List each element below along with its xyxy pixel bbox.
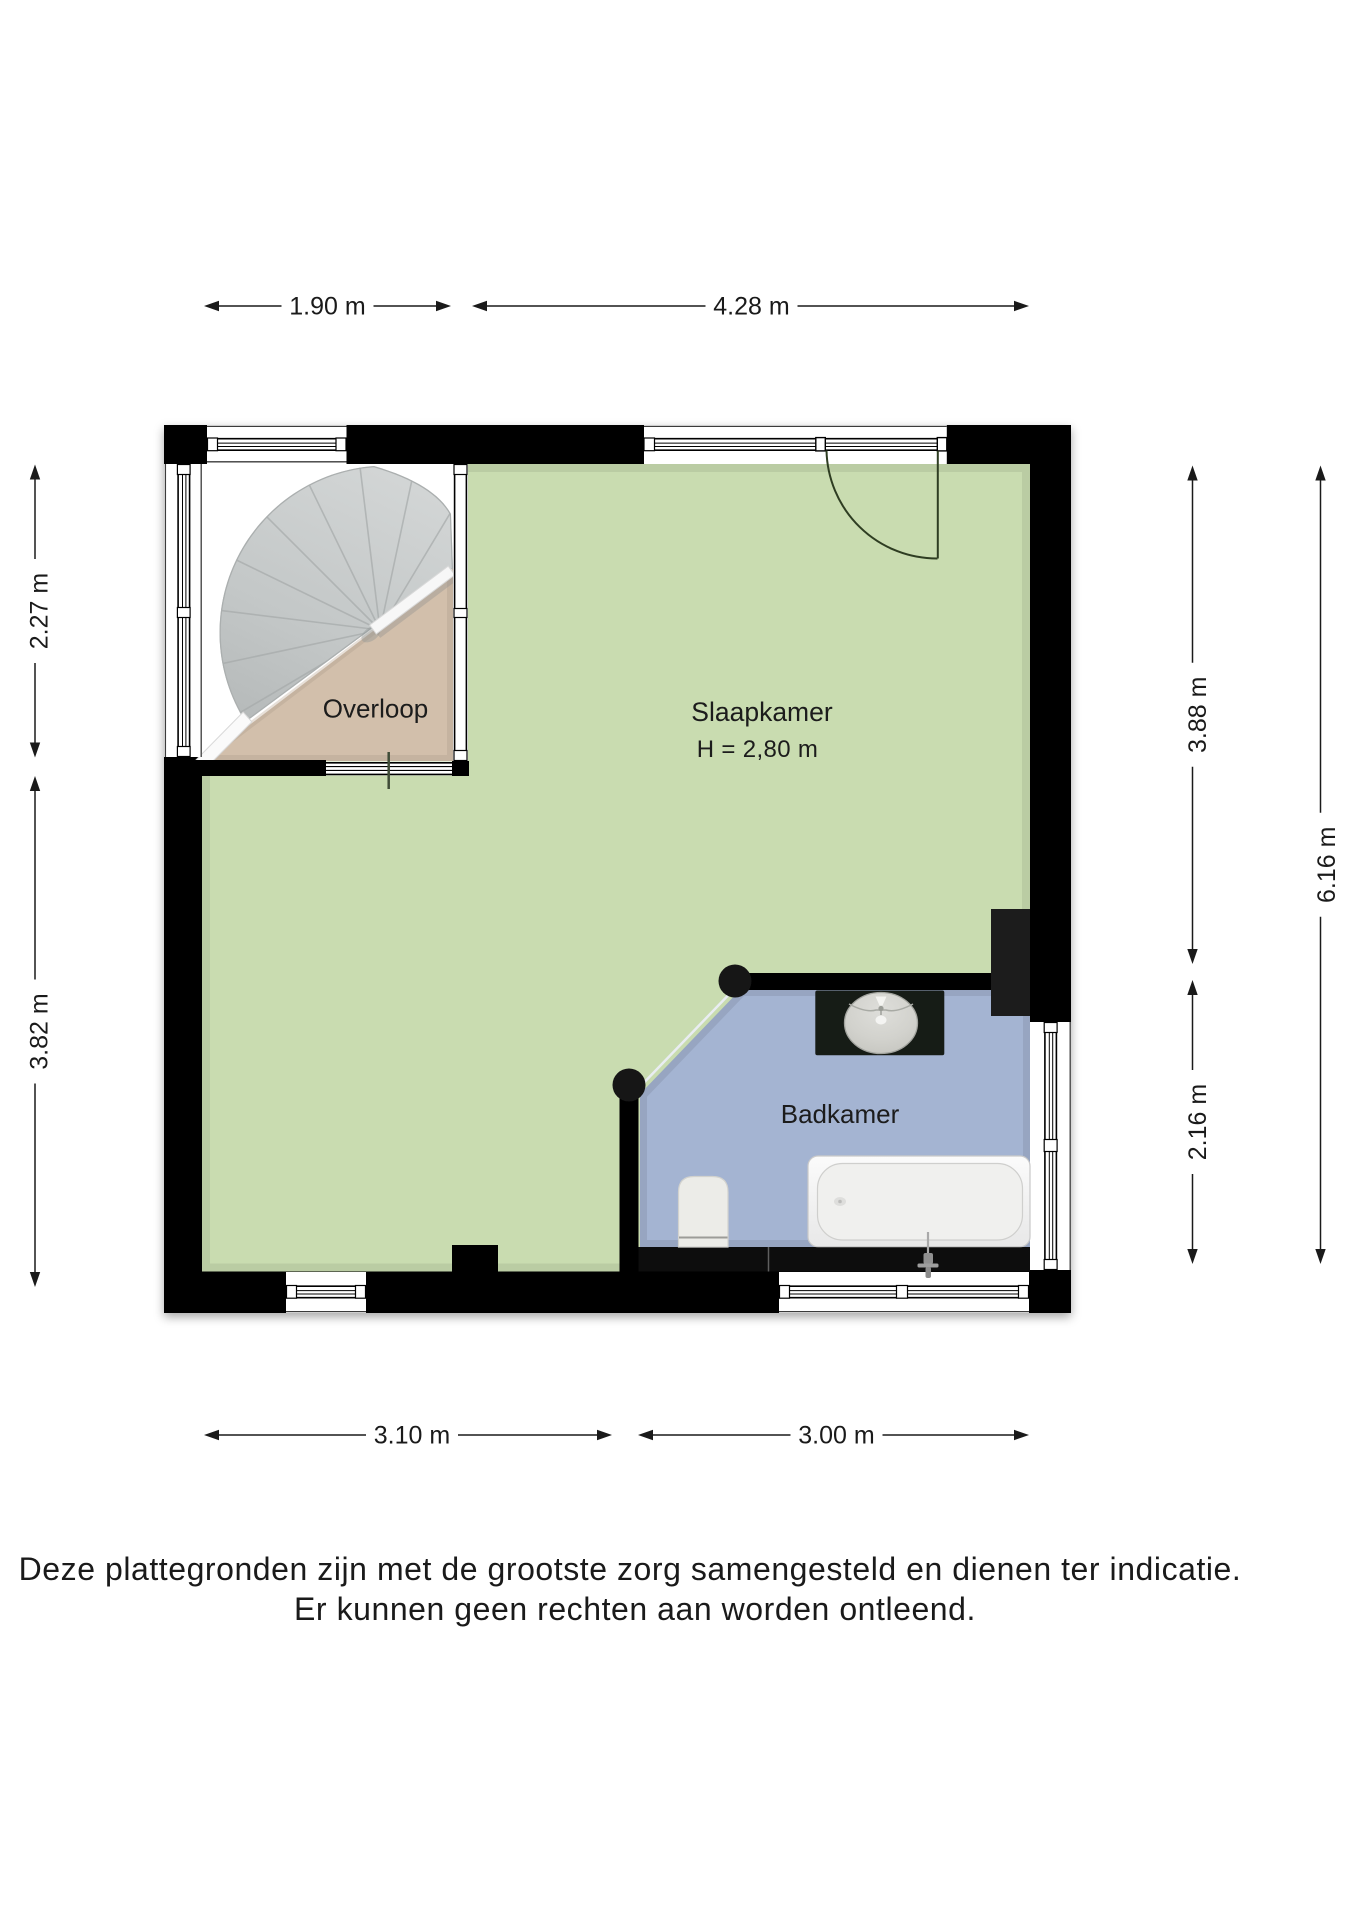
svg-text:Deze plattegronden zijn met de: Deze plattegronden zijn met de grootste …: [19, 1551, 1242, 1587]
svg-text:3.82 m: 3.82 m: [26, 993, 54, 1069]
svg-text:6.16 m: 6.16 m: [1313, 827, 1341, 903]
svg-text:4.28 m: 4.28 m: [713, 293, 789, 321]
svg-text:3.10 m: 3.10 m: [374, 1422, 450, 1450]
svg-text:2.27 m: 2.27 m: [26, 573, 54, 649]
svg-text:Overloop: Overloop: [323, 694, 429, 724]
svg-text:Er kunnen geen rechten aan wor: Er kunnen geen rechten aan worden ontlee…: [294, 1591, 976, 1627]
svg-text:2.16 m: 2.16 m: [1184, 1084, 1212, 1160]
svg-text:3.00 m: 3.00 m: [798, 1422, 874, 1450]
svg-text:1.90 m: 1.90 m: [289, 293, 365, 321]
svg-text:Slaapkamer: Slaapkamer: [691, 697, 833, 727]
svg-text:Badkamer: Badkamer: [781, 1099, 900, 1129]
svg-text:3.88 m: 3.88 m: [1184, 677, 1212, 753]
svg-text:H = 2,80 m: H = 2,80 m: [697, 736, 819, 763]
